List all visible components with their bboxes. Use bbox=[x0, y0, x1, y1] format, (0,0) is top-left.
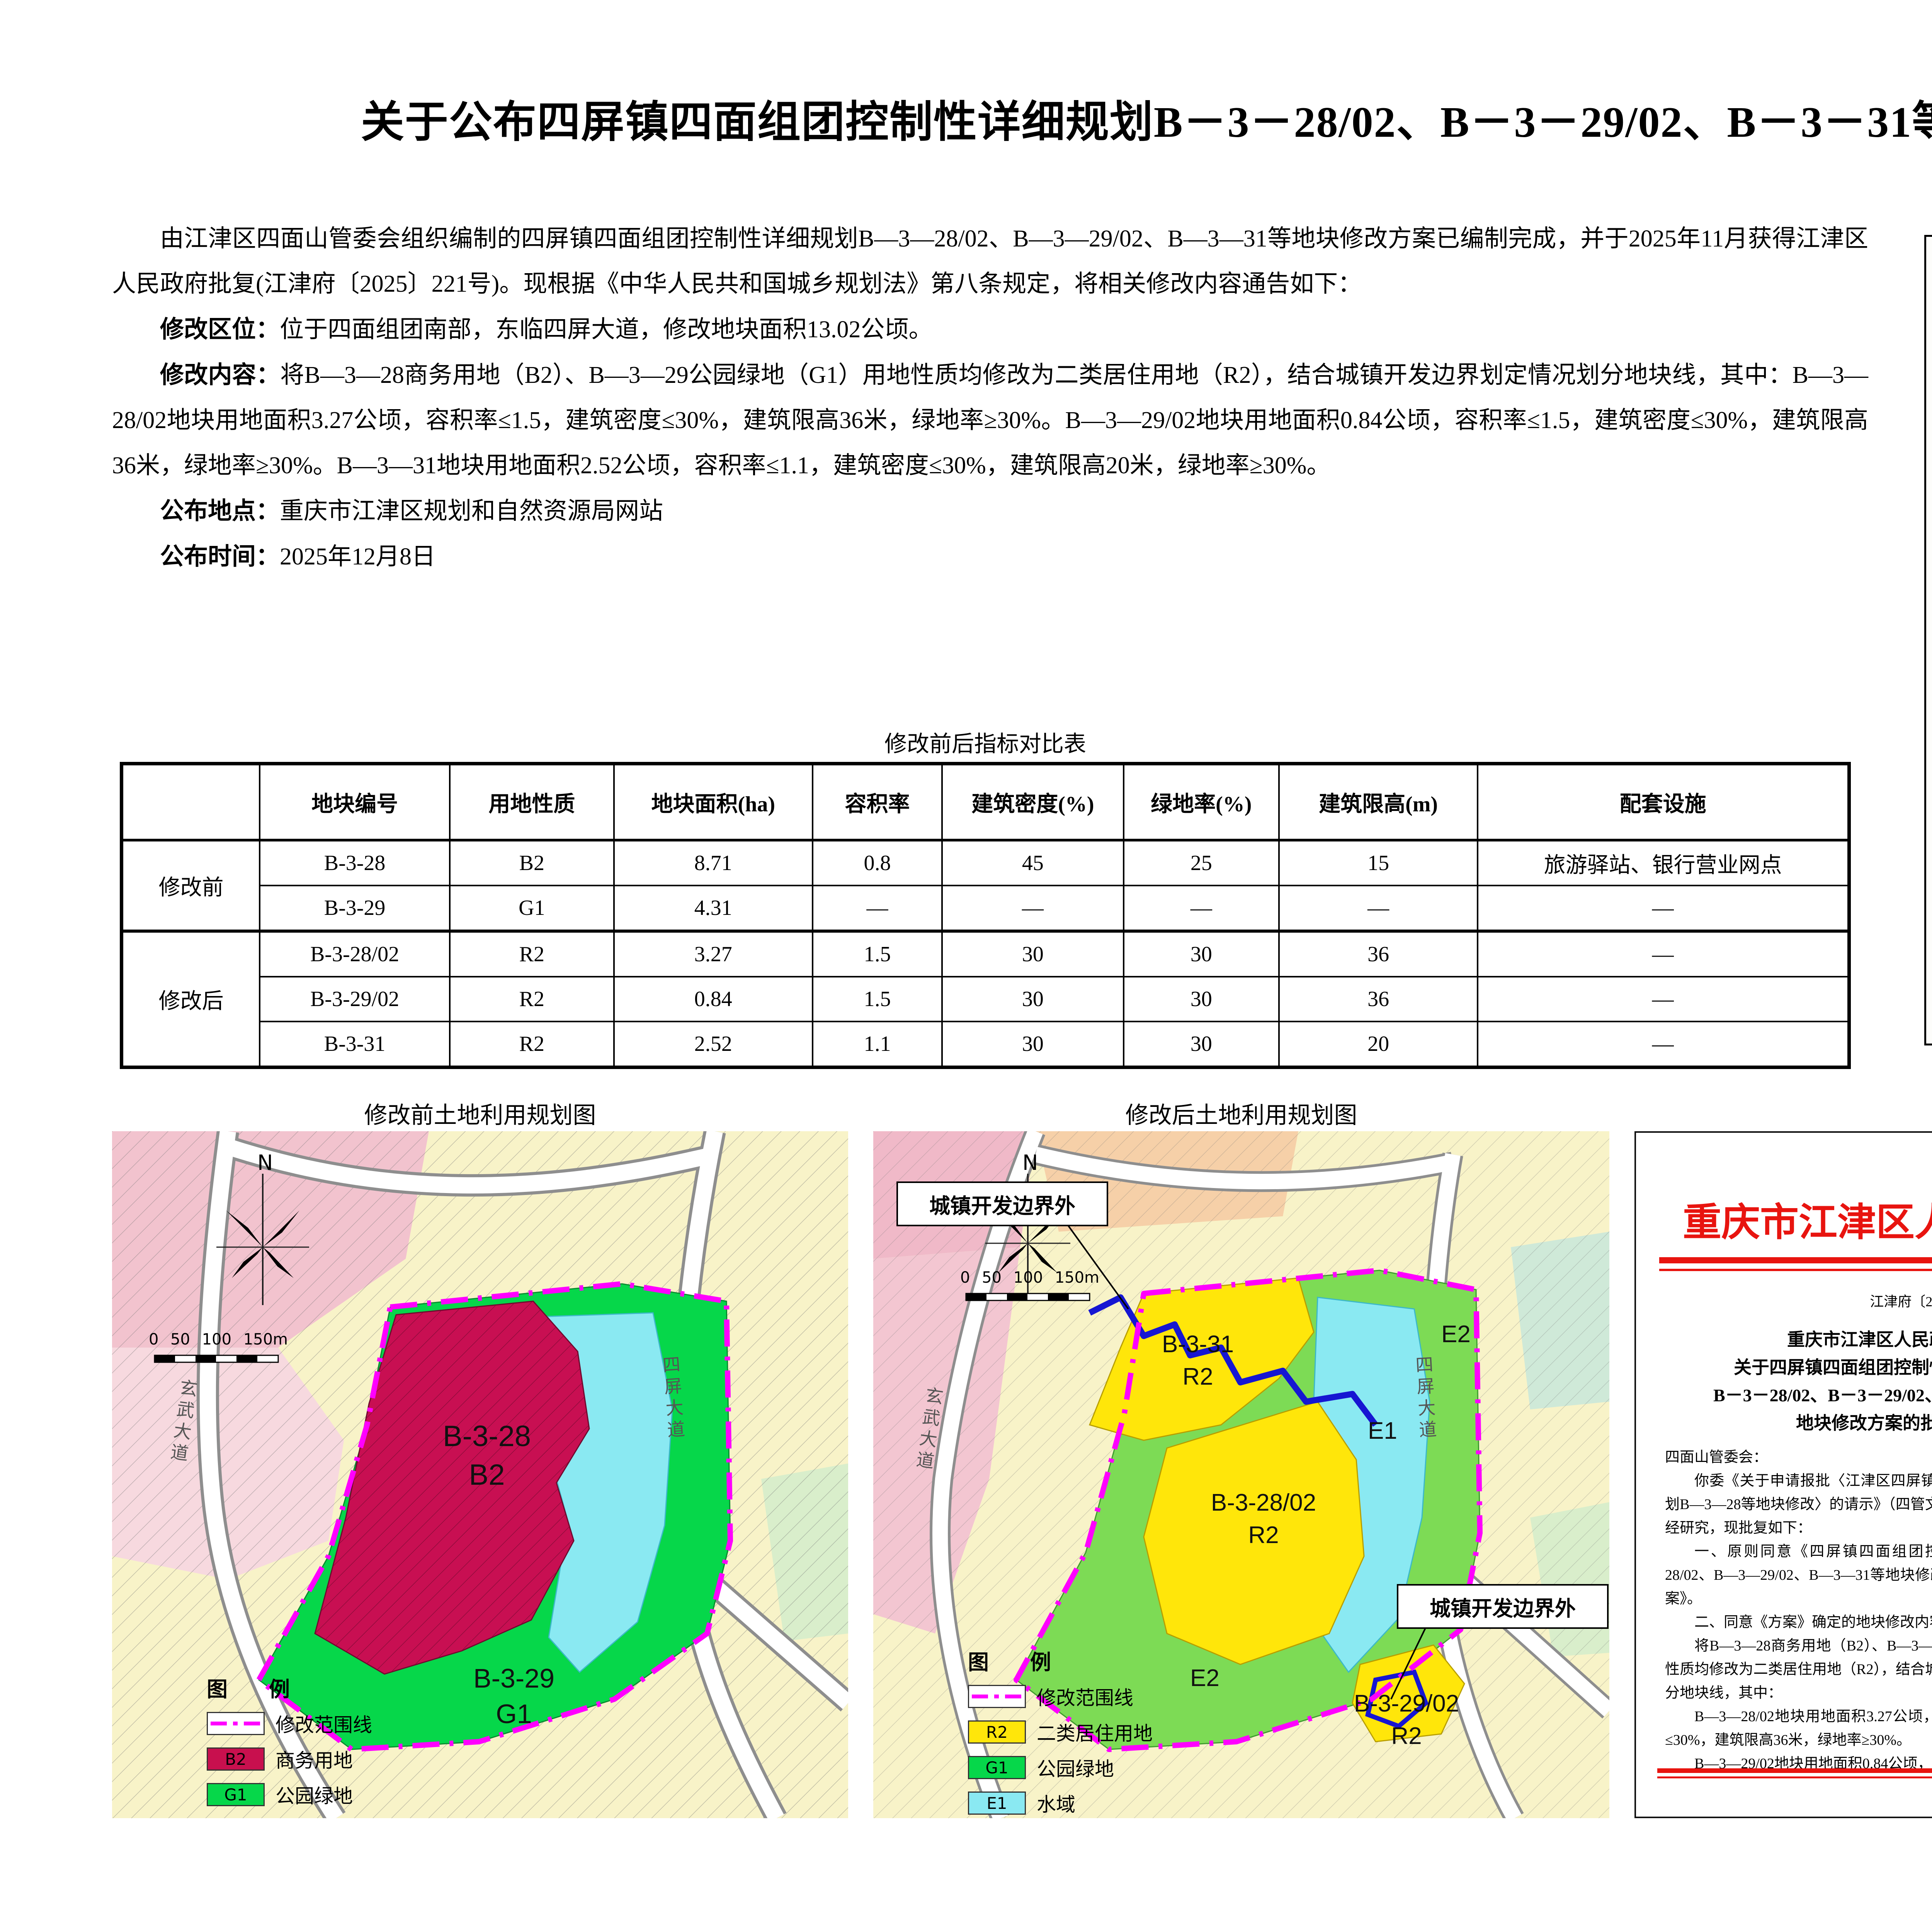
scale-tick: 50 bbox=[170, 1331, 190, 1348]
legend-swatch-g1: G1 bbox=[968, 1756, 1026, 1779]
cell: 3.27 bbox=[614, 931, 813, 977]
group-after: 修改后 bbox=[122, 931, 260, 1067]
legend-title: 图 例 bbox=[207, 1672, 391, 1703]
scale-tick: 100 bbox=[202, 1331, 231, 1348]
approval-doc-title: 重庆市江津区人民政府 关于四屏镇四面组团控制性详细规划 B－3－28/02、B－… bbox=[1651, 1326, 1932, 1437]
scale-bar-labels: 0 50 100 150m bbox=[960, 1269, 1099, 1287]
cell: 1.1 bbox=[813, 1022, 942, 1067]
cell: 0.84 bbox=[614, 977, 813, 1022]
legend-swatch-boundary-line bbox=[968, 1685, 1026, 1708]
notice-document-page: 关于公布四屏镇四面组团控制性详细规划B－3－28/02、B－3－29/02、B－… bbox=[0, 0, 1932, 1919]
plot-label-b-3-29-02: B-3-29/02 R2 bbox=[1318, 1688, 1495, 1752]
plot-label-e2-top: E2 bbox=[1441, 1321, 1471, 1348]
cell: B-3-29 bbox=[260, 886, 450, 931]
compass-n-label: N bbox=[1022, 1151, 1038, 1175]
location-map-title: 区位图 bbox=[1924, 192, 1932, 226]
cell: 30 bbox=[1124, 1022, 1279, 1067]
plot-use: R2 bbox=[1318, 1720, 1495, 1752]
scale-tick: 0 bbox=[149, 1331, 158, 1348]
table-row: B-3-29 G1 4.31 — — — — — bbox=[122, 886, 1849, 931]
plot-label-b-3-28: B-3-28 B2 bbox=[417, 1417, 556, 1494]
legend-item: G1 公园绿地 bbox=[207, 1781, 391, 1809]
cell: — bbox=[1478, 886, 1849, 931]
red-underline bbox=[1657, 1776, 1932, 1778]
cell: 30 bbox=[942, 1022, 1123, 1067]
cell: 15 bbox=[1279, 840, 1478, 886]
notice-item-content: 修改内容：将B—3—28商务用地（B2）、B—3—29公园绿地（G1）用地性质均… bbox=[112, 352, 1868, 488]
cell: R2 bbox=[450, 977, 614, 1022]
cell: 25 bbox=[1124, 840, 1279, 886]
plot-code: B-3-28/02 bbox=[1179, 1487, 1349, 1519]
scale-tick: 100 bbox=[1014, 1269, 1043, 1287]
cell: — bbox=[813, 886, 942, 931]
legend-item: 城镇开发边界 bbox=[207, 1816, 391, 1818]
cell: — bbox=[1124, 886, 1279, 931]
notice-item-location: 修改区位：位于四面组团南部，东临四屏大道，修改地块面积13.02公顷。 bbox=[112, 307, 1868, 352]
after-map-title: 修改后土地利用规划图 bbox=[873, 1096, 1609, 1130]
legend-item: B2 商务用地 bbox=[207, 1745, 391, 1773]
plot-label-b-3-31: B-3-31 R2 bbox=[1136, 1328, 1260, 1393]
cell: 0.8 bbox=[813, 840, 942, 886]
approval-page-1: 重庆市江津区人民政府 江津府〔2025〕221号 重庆市江津区人民政府 关于四屏… bbox=[1634, 1131, 1932, 1818]
cell: 20 bbox=[1279, 1022, 1478, 1067]
legend-swatch-r2: R2 bbox=[968, 1720, 1026, 1744]
header-blank bbox=[122, 764, 260, 840]
plot-code: B-3-28 bbox=[417, 1417, 556, 1456]
plot-label-e2-bottom: E2 bbox=[1190, 1664, 1219, 1692]
header-facilities: 配套设施 bbox=[1478, 764, 1849, 840]
red-rule bbox=[1659, 1257, 1932, 1263]
scale-tick: 0 bbox=[960, 1269, 970, 1287]
legend-item: 修改范围线 bbox=[207, 1710, 391, 1737]
header-land-use: 用地性质 bbox=[450, 764, 614, 840]
notice-item-place: 公布地点：重庆市江津区规划和自然资源局网站 bbox=[112, 488, 1868, 534]
plot-code: B-3-31 bbox=[1136, 1328, 1260, 1361]
cell: — bbox=[1478, 931, 1849, 977]
after-land-use-map: N 0 50 100 150m 城镇开发边界外 城镇开发边界外 B-3-31 R… bbox=[873, 1131, 1609, 1818]
cell: R2 bbox=[450, 1022, 614, 1067]
plot-code: B-3-29 bbox=[444, 1661, 583, 1696]
cell: B-3-31 bbox=[260, 1022, 450, 1067]
compass-n-label: N bbox=[257, 1151, 273, 1175]
location-map: N 0 50 100 150m 玄武大道 四屏大道 银岩路 修改地块 bbox=[1924, 235, 1932, 1045]
legend-item: R2 二类居住用地 bbox=[968, 1718, 1153, 1746]
notice-body: 由江津区四面山管委会组织编制的四屏镇四面组团控制性详细规划B—3—28/02、B… bbox=[112, 216, 1868, 580]
plot-use: B2 bbox=[417, 1456, 556, 1494]
cell: 45 bbox=[942, 840, 1123, 886]
table-row: B-3-31 R2 2.52 1.1 30 30 20 — bbox=[122, 1022, 1849, 1067]
page-title: 关于公布四屏镇四面组团控制性详细规划B－3－28/02、B－3－29/02、B－… bbox=[0, 87, 1932, 150]
cell: 30 bbox=[1124, 931, 1279, 977]
approval-body-page1: 四面山管委会： 你委《关于申请报批〈江津区四屏镇四面组团控制性详细规划B—3—2… bbox=[1665, 1446, 1932, 1776]
header-height-limit: 建筑限高(m) bbox=[1279, 764, 1478, 840]
plot-label-e1: E1 bbox=[1368, 1417, 1397, 1445]
table-row: 修改前 B-3-28 B2 8.71 0.8 45 25 15 旅游驿站、银行营… bbox=[122, 840, 1849, 886]
red-underline bbox=[1657, 1768, 1932, 1773]
header-plot-code: 地块编号 bbox=[260, 764, 450, 840]
group-before: 修改前 bbox=[122, 840, 260, 931]
cell: 30 bbox=[942, 977, 1123, 1022]
header-green-rate: 绿地率(%) bbox=[1124, 764, 1279, 840]
legend-swatch-g1: G1 bbox=[207, 1783, 265, 1806]
legend-swatch-boundary-line bbox=[207, 1712, 265, 1735]
cell: — bbox=[942, 886, 1123, 931]
legend-swatch-b2: B2 bbox=[207, 1747, 265, 1771]
dev-boundary-callout-2: 城镇开发边界外 bbox=[1397, 1584, 1609, 1629]
table-header-row: 地块编号 用地性质 地块面积(ha) 容积率 建筑密度(%) 绿地率(%) 建筑… bbox=[122, 764, 1849, 840]
legend-item: E1 水域 bbox=[968, 1789, 1153, 1817]
plot-use: G1 bbox=[444, 1696, 583, 1732]
indicator-comparison-table: 地块编号 用地性质 地块面积(ha) 容积率 建筑密度(%) 绿地率(%) 建筑… bbox=[120, 762, 1851, 1069]
cell: R2 bbox=[450, 931, 614, 977]
table-row: B-3-29/02 R2 0.84 1.5 30 30 36 — bbox=[122, 977, 1849, 1022]
legend-title: 图 例 bbox=[968, 1645, 1153, 1676]
cell: B2 bbox=[450, 840, 614, 886]
cell: 1.5 bbox=[813, 931, 942, 977]
legend-swatch-e1: E1 bbox=[968, 1792, 1026, 1815]
location-map-canvas bbox=[1926, 237, 1932, 1045]
scale-tick: 150m bbox=[1055, 1269, 1099, 1287]
cell: 36 bbox=[1279, 977, 1478, 1022]
cell: — bbox=[1279, 886, 1478, 931]
before-map-legend: 图 例 修改范围线 B2 商务用地 G1 公园绿地 城镇开发边界 bbox=[207, 1672, 391, 1818]
plot-code: B-3-29/02 bbox=[1318, 1688, 1495, 1720]
approval-doc-number: 江津府〔2025〕221号 bbox=[1780, 1290, 1932, 1310]
scale-tick: 50 bbox=[982, 1269, 1002, 1287]
cell: 8.71 bbox=[614, 840, 813, 886]
notice-intro: 由江津区四面山管委会组织编制的四屏镇四面组团控制性详细规划B—3—28/02、B… bbox=[112, 216, 1868, 307]
cell: 旅游驿站、银行营业网点 bbox=[1478, 840, 1849, 886]
cell: B-3-28 bbox=[260, 840, 450, 886]
header-far: 容积率 bbox=[813, 764, 942, 840]
approval-agency-header: 重庆市江津区人民政府 bbox=[1636, 1191, 1932, 1247]
plot-label-b-3-29: B-3-29 G1 bbox=[444, 1661, 583, 1732]
cell: B-3-29/02 bbox=[260, 977, 450, 1022]
cell: 36 bbox=[1279, 931, 1478, 977]
cell: B-3-28/02 bbox=[260, 931, 450, 977]
cell: 30 bbox=[942, 931, 1123, 977]
plot-use: R2 bbox=[1136, 1361, 1260, 1393]
table-caption: 修改前后指标对比表 bbox=[120, 726, 1851, 758]
cell: 2.52 bbox=[614, 1022, 813, 1067]
cell: 1.5 bbox=[813, 977, 942, 1022]
scale-tick: 150m bbox=[243, 1331, 288, 1348]
approval-title: 批复文件 bbox=[1634, 1096, 1932, 1130]
header-density: 建筑密度(%) bbox=[942, 764, 1123, 840]
legend-item: 修改范围线 bbox=[968, 1683, 1153, 1710]
cell: — bbox=[1478, 1022, 1849, 1067]
plot-label-b-3-28-02: B-3-28/02 R2 bbox=[1179, 1487, 1349, 1552]
table-row: 修改后 B-3-28/02 R2 3.27 1.5 30 30 36 — bbox=[122, 931, 1849, 977]
notice-item-date: 公布时间：2025年12月8日 bbox=[112, 534, 1868, 580]
cell: 30 bbox=[1124, 977, 1279, 1022]
cell: — bbox=[1478, 977, 1849, 1022]
dev-boundary-callout-1: 城镇开发边界外 bbox=[896, 1181, 1108, 1226]
plot-use: R2 bbox=[1179, 1519, 1349, 1552]
legend-item: G1 公园绿地 bbox=[968, 1754, 1153, 1781]
cell: 4.31 bbox=[614, 886, 813, 931]
before-map-title: 修改前土地利用规划图 bbox=[112, 1096, 848, 1130]
after-map-legend: 图 例 修改范围线 R2 二类居住用地 G1 公园绿地 E1 水域 E2 农林用… bbox=[968, 1645, 1153, 1818]
header-area: 地块面积(ha) bbox=[614, 764, 813, 840]
before-land-use-map: N 0 50 100 150m B-3-28 B2 B-3-29 G1 玄武大道… bbox=[112, 1131, 848, 1818]
red-rule bbox=[1659, 1269, 1932, 1271]
road-label-siping: 四屏大道 bbox=[1410, 1355, 1440, 1442]
scale-bar-labels: 0 50 100 150m bbox=[149, 1331, 288, 1348]
cell: G1 bbox=[450, 886, 614, 931]
